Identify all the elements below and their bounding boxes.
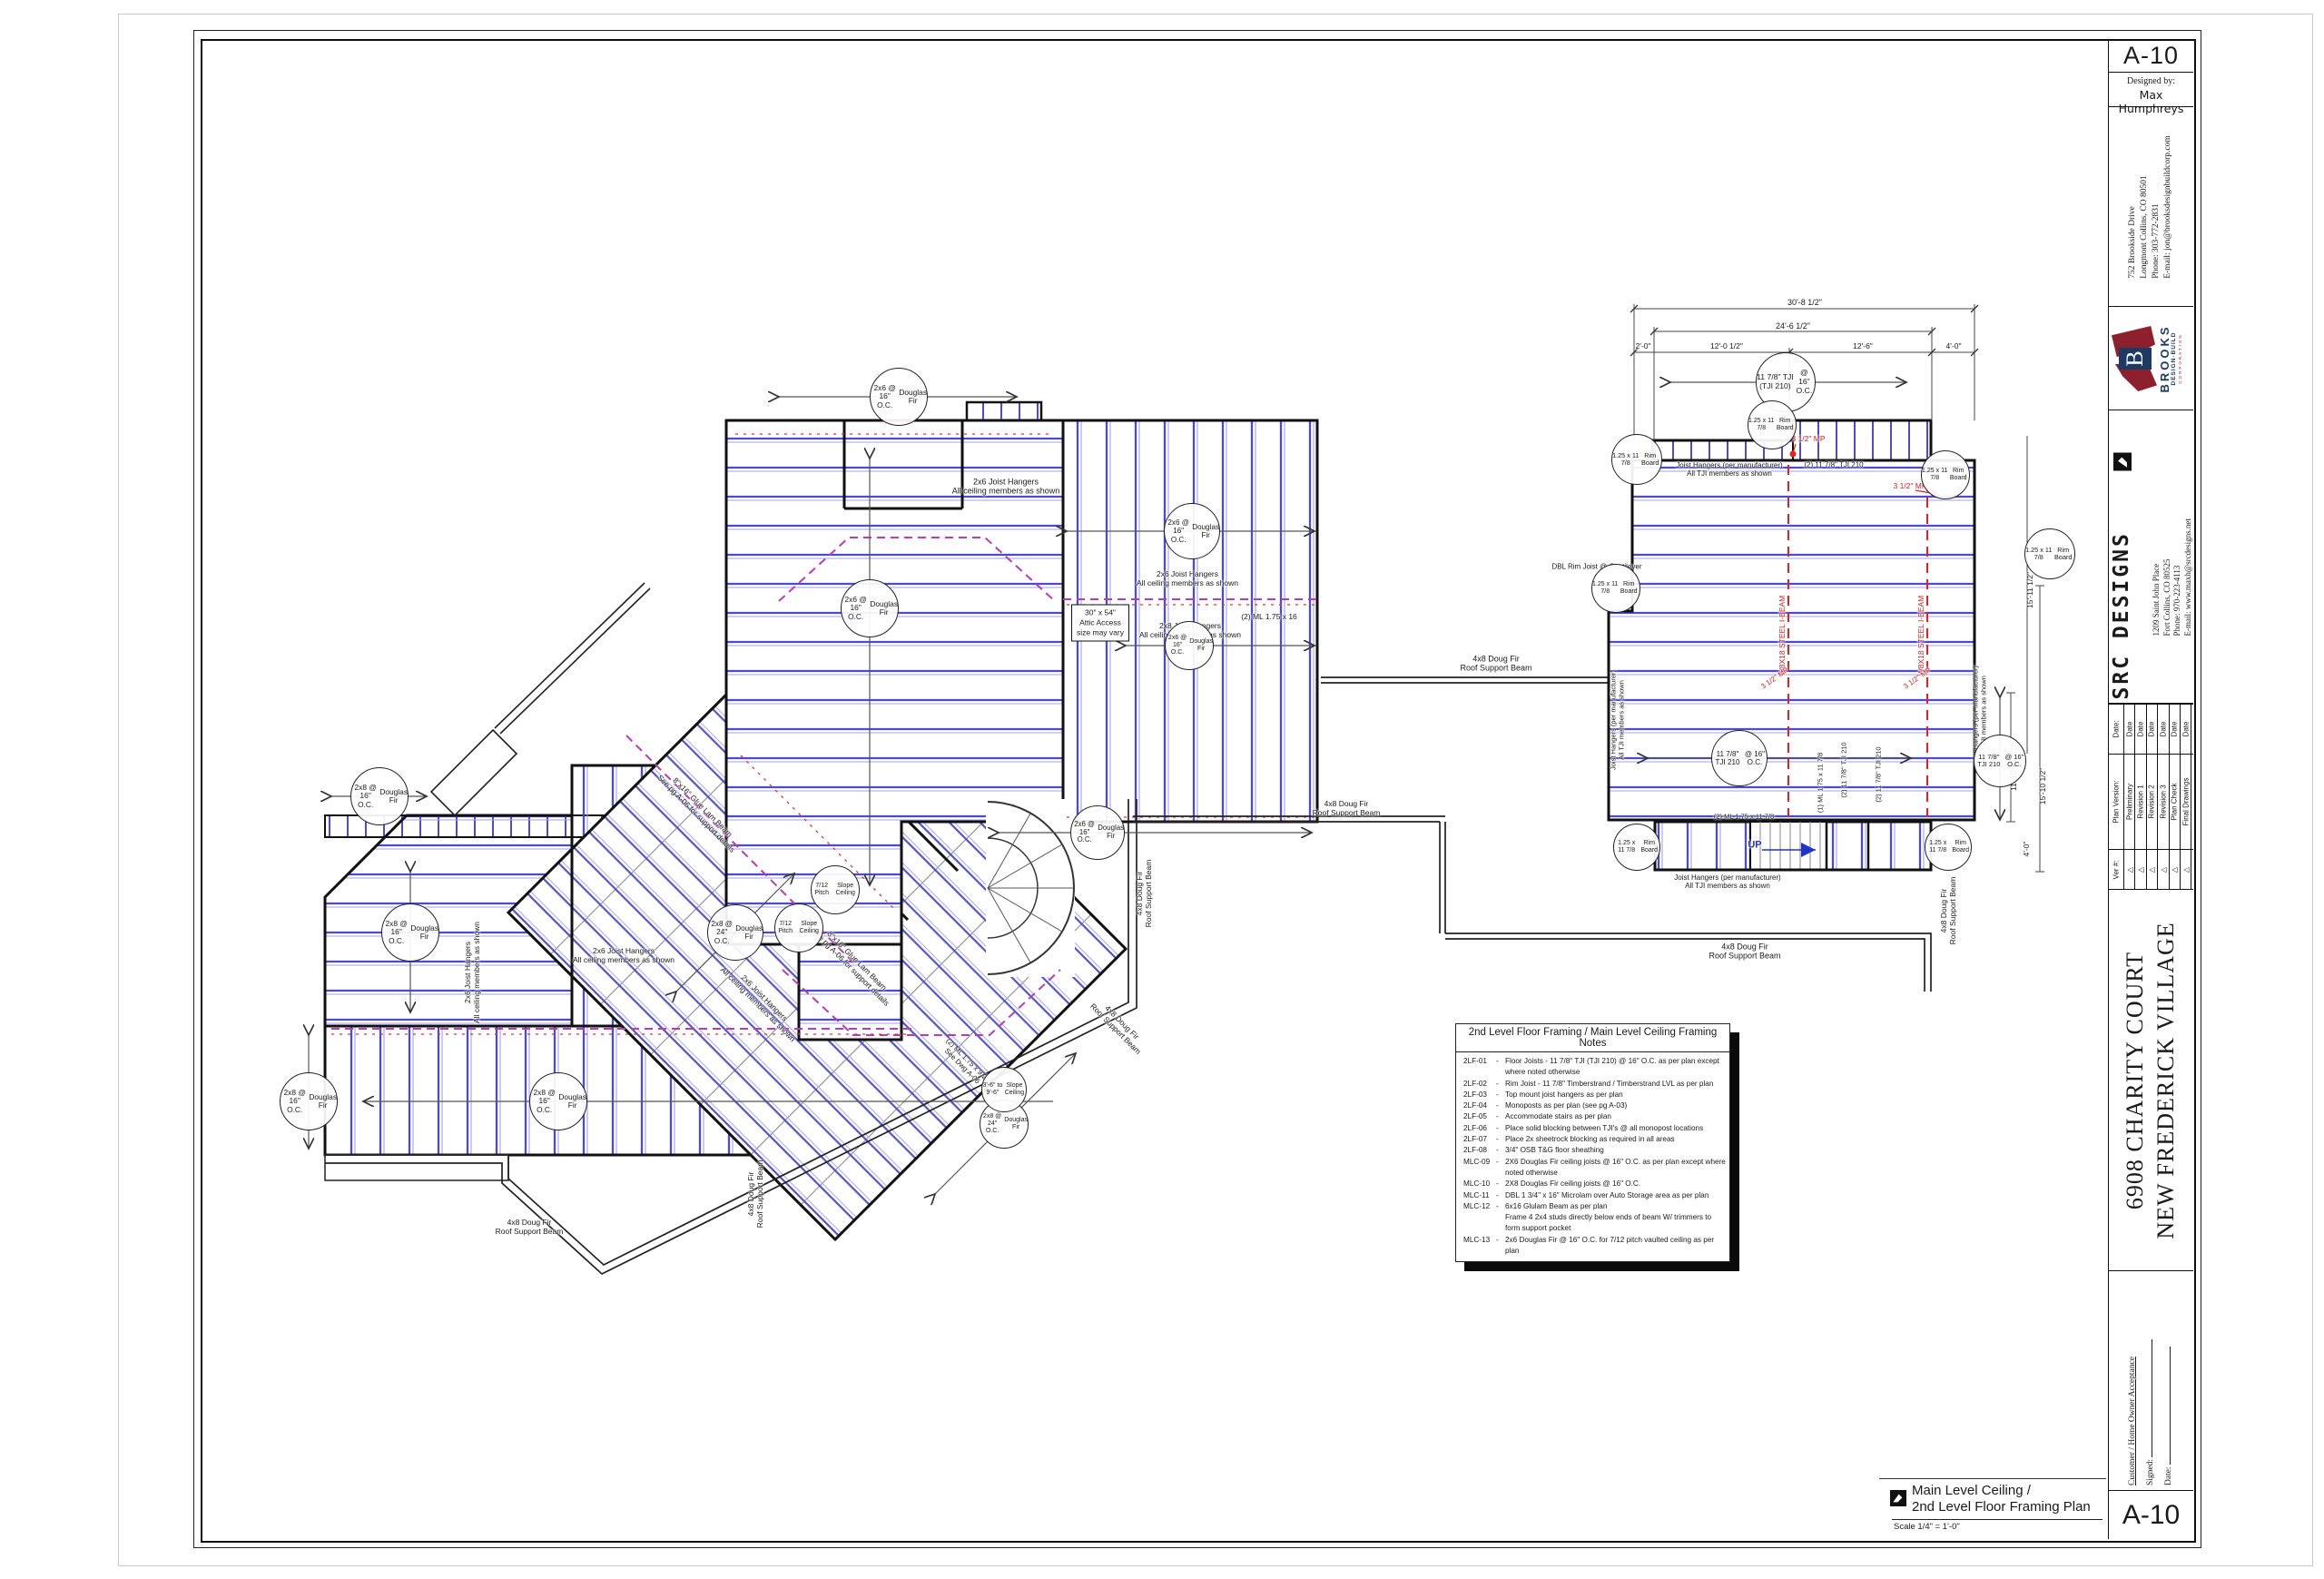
note-row: Frame 4 2x4 studs directly below ends of… (1460, 1212, 1726, 1235)
note-row: MLC-10-2X8 Douglas Fir ceiling joists @ … (1460, 1179, 1726, 1189)
date-line (2161, 1347, 2171, 1465)
project-title-section: 6908 CHARITY COURT NEW FREDERICK VILLAGE (2109, 890, 2193, 1271)
brooks-address: 752 Brookside DriveLongmont Collins, CO … (2127, 135, 2174, 279)
revision-cell: △ (2147, 850, 2158, 890)
revision-version-band: Plan Version:PreliminaryRevision 1Revisi… (2109, 754, 2193, 849)
brooks-logo-sub2: CORPORATION (2178, 311, 2183, 407)
revision-cell: Revision 1 (2135, 755, 2146, 849)
title-block: A-10 Designed by: Max Humphreys 752 Broo… (2108, 39, 2193, 1539)
revision-table: Date:DateDateDateDateDateDate Plan Versi… (2109, 704, 2193, 890)
designed-by-section: Designed by: Max Humphreys (2109, 73, 2193, 107)
revision-header-cell: Ver #: (2109, 850, 2124, 890)
note-row: 2LF-05-Accommodate stairs as per plan (1460, 1111, 1726, 1122)
revision-cell: △ (2135, 850, 2146, 890)
revision-cell: △ (2170, 850, 2181, 890)
sheet-border-inner (201, 39, 2196, 1543)
src-logo-icon-small (1890, 1490, 1906, 1506)
note-row: 2LF-06-Place solid blocking between TJI'… (1460, 1123, 1726, 1134)
brooks-emblem-icon: B (2112, 326, 2159, 391)
note-row: 2LF-03-Top mount joist hangers as per pl… (1460, 1090, 1726, 1100)
notes-title: 2nd Level Floor Framing / Main Level Cei… (1456, 1024, 1729, 1052)
revision-cell: Date (2124, 705, 2135, 754)
brooks-logo: B BROOKS DESIGN-BUILD CORPORATION (2112, 311, 2190, 407)
revision-cell: Date (2147, 705, 2158, 754)
revision-cell: Date (2135, 705, 2146, 754)
revision-cell: △ (2124, 850, 2135, 890)
notes-body: 2LF-01-Floor Joists - 11 7/8" TJI (TJI 2… (1456, 1052, 1729, 1261)
src-designs-section: SRC DESIGNS 1209 Saint John PlaceFort Co… (2109, 410, 2193, 704)
drawing-title-line2: 2nd Level Floor Framing Plan (1912, 1499, 2091, 1515)
src-address: 1209 Saint John PlaceFort Collins, CO 80… (2152, 518, 2193, 636)
revision-cell: Plan Check (2170, 755, 2181, 849)
brooks-address-section: 752 Brookside DriveLongmont Collins, CO … (2109, 107, 2193, 307)
acceptance-section: Customer / Home Owner Acceptance Signed:… (2109, 1271, 2193, 1491)
note-row: MLC-09-2X6 Douglas Fir ceiling joists @ … (1460, 1157, 1726, 1179)
note-row: MLC-13-2x6 Douglas Fir @ 16" O.C. for 7/… (1460, 1235, 1726, 1258)
note-row: 2LF-04-Monoposts as per plan (see pg A-0… (1460, 1100, 1726, 1111)
signed-label: Signed: (2146, 1459, 2155, 1485)
revision-cell: Date (2181, 705, 2191, 754)
revision-cell: Date (2158, 705, 2169, 754)
designed-by-label: Designed by: (2109, 76, 2193, 86)
src-logo-icon (2113, 453, 2132, 471)
revision-cell: Final Drawings (2181, 755, 2191, 849)
brooks-logo-name: BROOKS (2159, 311, 2171, 407)
revision-header-cell: Plan Version: (2109, 755, 2124, 849)
drawing-title-bar: Main Level Ceiling / 2nd Level Floor Fra… (1879, 1478, 2106, 1540)
revision-cell: Revision 2 (2147, 755, 2158, 849)
revision-cell: Date (2170, 705, 2181, 754)
sheet-number-bottom: A-10 (2109, 1491, 2193, 1539)
acceptance-title: Customer / Home Owner Acceptance (2123, 1277, 2142, 1485)
project-line2: NEW FREDERICK VILLAGE (2151, 922, 2181, 1239)
drawing-title-line1: Main Level Ceiling / (1912, 1483, 2091, 1499)
revision-ver-band: Ver #:△△△△△△ (2109, 849, 2193, 890)
revision-cell: △ (2181, 850, 2191, 890)
acceptance-date-label: Date: (2164, 1466, 2173, 1485)
project-line1: 6908 CHARITY COURT (2120, 922, 2151, 1239)
sheet-number-top: A-10 (2109, 39, 2193, 73)
revision-date-band: Date:DateDateDateDateDateDate (2109, 704, 2193, 754)
note-row: MLC-11-DBL 1 3/4" x 16" Microlam over Au… (1460, 1190, 1726, 1201)
note-row: 2LF-07-Place 2x sheetrock blocking as re… (1460, 1134, 1726, 1145)
revision-cell: Revision 3 (2158, 755, 2169, 849)
brooks-logo-section: B BROOKS DESIGN-BUILD CORPORATION (2109, 307, 2193, 410)
note-row: 2LF-08-3/4" OSB T&G floor sheathing (1460, 1145, 1726, 1156)
src-designs-name: SRC DESIGNS (2110, 531, 2133, 699)
note-row: 2LF-02-Rim Joist - 11 7/8" Timberstrand … (1460, 1079, 1726, 1090)
drawing-scale: Scale 1/4" = 1'-0" (1894, 1522, 1960, 1532)
brooks-logo-sub: DESIGN-BUILD (2171, 311, 2178, 407)
note-row: 2LF-01-Floor Joists - 11 7/8" TJI (TJI 2… (1460, 1056, 1726, 1079)
revision-cell: △ (2158, 850, 2169, 890)
signed-line (2142, 1339, 2152, 1457)
note-row: MLC-12-6x16 Glulam Beam as per plan (1460, 1201, 1726, 1212)
framing-notes-table: 2nd Level Floor Framing / Main Level Cei… (1455, 1023, 1730, 1262)
revision-header-cell: Date: (2109, 705, 2124, 754)
revision-cell: Preliminary (2124, 755, 2135, 849)
